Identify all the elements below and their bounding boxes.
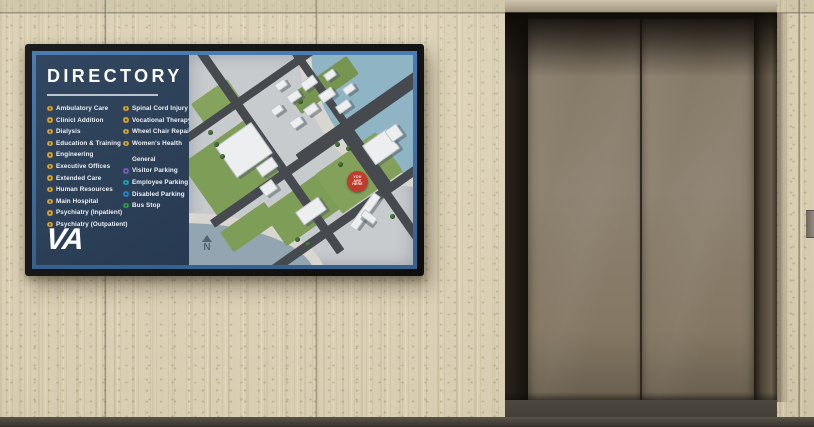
legend-item-label: Bus Stop [132,202,160,209]
legend-item-label: Human Resources [56,186,113,193]
legend-item-label: Extended Care [56,175,101,182]
elevator-header-panel [505,0,777,13]
legend-item: Visitor Parking [123,167,189,174]
legend-bullet-icon [123,180,129,186]
legend-item: Bus Stop [123,202,189,209]
legend-item-label: Dialysis [56,128,81,135]
campus-map: YOU ARE HERE N [189,55,413,265]
legend-bullet-icon [123,191,129,197]
legend-item-label: Clinicl Addition [56,117,104,124]
legend-item: Education & Training [47,140,123,147]
legend-item-label: Ambulatory Care [56,105,108,112]
directory-sign-display: DIRECTORY Ambulatory CareClinicl Additio… [25,44,424,276]
legend-item-label: Main Hospital [56,198,98,205]
title-divider [47,94,158,96]
legend-item-label: Employee Parking [132,179,188,186]
compass-label: N [203,243,210,252]
sign-screen: DIRECTORY Ambulatory CareClinicl Additio… [32,51,417,269]
legend-item-label: Vocational Therapy [132,117,189,124]
legend-right-rows: Spinal Cord InjuryVocational TherapyWhee… [123,105,189,151]
legend-item: Ambulatory Care [47,105,123,112]
legend-bullet-icon [47,175,53,181]
legend-item: Executive Offices [47,163,123,170]
legend-item: Disabled Parking [123,191,189,198]
va-logo: VA [44,223,84,257]
legend-item: Spinal Cord Injury [123,105,189,112]
legend: Ambulatory CareClinicl AdditionDialysisE… [47,105,181,233]
compass-north: N [202,235,212,252]
legend-bullet-icon [123,141,129,147]
legend-item: Dialysis [47,128,123,135]
legend-bullet-icon [123,117,129,123]
general-list: Visitor ParkingEmployee ParkingDisabled … [123,167,189,213]
legend-bullet-icon [123,203,129,209]
you-are-here-marker: YOU ARE HERE [347,171,368,192]
legend-item: Main Hospital [47,198,123,205]
compass-arrow-icon [202,235,212,242]
legend-item-label: Women's Health [132,140,182,147]
legend-bullet-icon [47,129,53,135]
legend-item-label: Executive Offices [56,163,110,170]
legend-item-label: Disabled Parking [132,191,185,198]
legend-bullet-icon [47,187,53,193]
legend-item: Psychiatry (Inpatient) [47,209,123,216]
directory-title: DIRECTORY [47,66,181,87]
legend-bullet-icon [47,106,53,112]
legend-bullet-icon [123,168,129,174]
legend-item-label: Psychiatry (Inpatient) [56,209,122,216]
legend-item: Extended Care [47,175,123,182]
legend-bullet-icon [123,129,129,135]
legend-column-left: Ambulatory CareClinicl AdditionDialysisE… [47,105,123,233]
wall-seam-vertical [798,0,801,417]
legend-item-label: Spinal Cord Injury [132,105,188,112]
legend-item: Engineering [47,151,123,158]
hallway-floor [0,417,814,427]
elevator-recess [505,13,777,402]
legend-column-right: Spinal Cord InjuryVocational TherapyWhee… [123,105,189,233]
legend-bullet-icon [47,164,53,170]
legend-item-label: Visitor Parking [132,167,178,174]
hallway-scene: DIRECTORY Ambulatory CareClinicl Additio… [0,0,814,427]
elevator-soffit-shadow [505,13,777,77]
legend-item: Employee Parking [123,179,189,186]
legend-item: Women's Health [123,140,189,147]
legend-item-label: Wheel Chair Repair [132,128,189,135]
legend-item: Wheel Chair Repair [123,128,189,135]
legend-bullet-icon [47,199,53,205]
legend-item-label: Education & Training [56,140,121,147]
legend-bullet-icon [47,152,53,158]
general-header: General [132,156,189,163]
elevator-floor [505,400,777,417]
elevator-recess-shadow [777,13,789,402]
legend-bullet-icon [123,106,129,112]
you-are-here-label: HERE [352,183,363,187]
legend-bullet-icon [47,210,53,216]
legend-item: Human Resources [47,186,123,193]
legend-item: Vocational Therapy [123,117,189,124]
legend-bullet-icon [47,141,53,147]
legend-item: Clinicl Addition [47,117,123,124]
directory-panel: DIRECTORY Ambulatory CareClinicl Additio… [36,55,189,265]
legend-bullet-icon [47,117,53,123]
elevator-call-panel [806,210,814,238]
legend-item-label: Engineering [56,151,94,158]
